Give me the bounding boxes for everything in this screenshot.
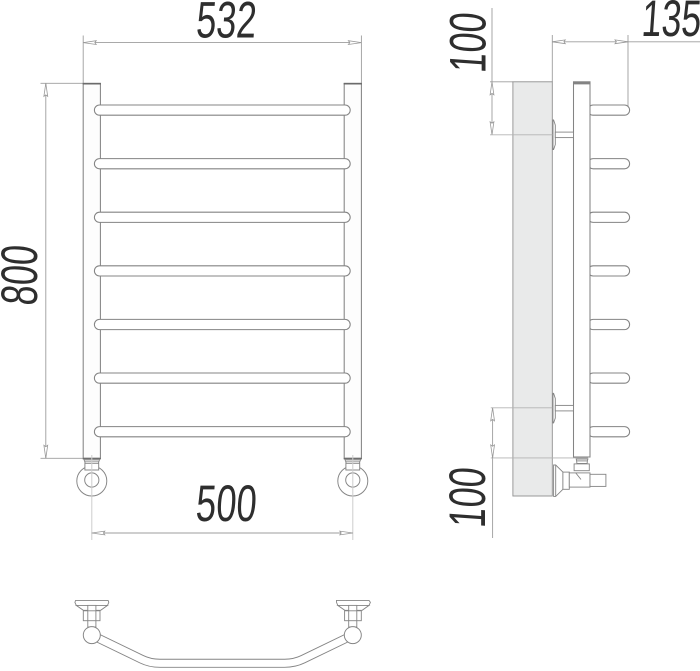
svg-text:500: 500 (194, 474, 259, 532)
svg-text:800: 800 (0, 243, 48, 307)
svg-text:532: 532 (195, 0, 259, 48)
svg-text:100: 100 (438, 10, 496, 74)
svg-text:100: 100 (438, 465, 496, 529)
svg-text:135: 135 (640, 0, 700, 47)
